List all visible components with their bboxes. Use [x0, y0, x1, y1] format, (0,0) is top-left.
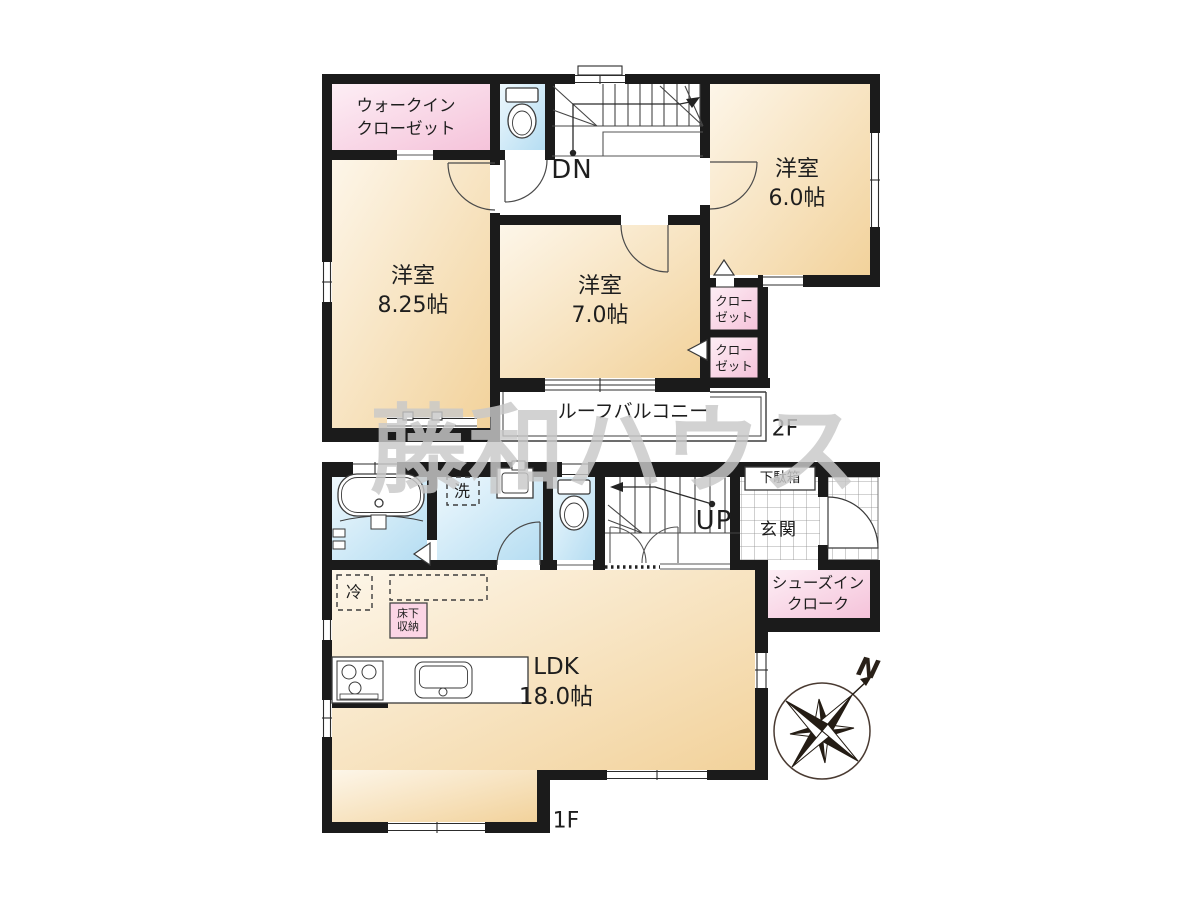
floorplan-page: ウォークイン クローゼット 洋室 8.25帖 洋室 7.0帖 洋室 6.0帖 D… — [0, 0, 1200, 900]
kitchen-counter-icon — [332, 657, 528, 703]
window-ldk-right — [755, 653, 768, 688]
window-60-bottom — [763, 275, 803, 287]
window-toilet-top — [562, 462, 588, 477]
bedroom-70-room — [500, 225, 700, 378]
window-70-balcony — [545, 378, 655, 392]
stove-icon — [337, 661, 383, 700]
roof-balcony-outline — [497, 392, 766, 441]
compass-icon — [774, 676, 872, 779]
bedroom-60-room — [710, 84, 870, 275]
closet-lower-room — [710, 337, 758, 378]
ldk-room-lower — [332, 770, 537, 822]
floorplan-drawing — [0, 0, 1200, 900]
shoe-cabinet-box — [745, 467, 815, 490]
stairs-1f-path — [616, 487, 715, 507]
stairs-1f-arrowhead — [610, 482, 623, 492]
toilet-1f-icon — [558, 480, 590, 530]
room-fills — [332, 84, 870, 822]
closet-upper-room — [710, 287, 758, 330]
door-toilet-2f — [505, 160, 547, 202]
walk-in-closet-room — [332, 84, 490, 150]
window-ldk-notch — [607, 770, 707, 780]
sink-icon — [415, 662, 472, 698]
toilet-2f-icon — [506, 88, 538, 138]
compass-north-arrowhead — [860, 676, 872, 686]
window-2f-top — [575, 66, 625, 84]
stairs-2f-icon — [552, 84, 703, 156]
stairs-2f-path — [570, 101, 695, 156]
window-2f-right — [870, 133, 880, 227]
window-ldk-bottom — [388, 822, 485, 833]
underfloor-storage-box — [390, 603, 427, 638]
shoes-in-closet-room — [768, 570, 870, 618]
window-1f-left-lower — [322, 700, 332, 737]
window-1f-left-upper — [322, 620, 332, 640]
window-2f-left — [322, 262, 332, 302]
